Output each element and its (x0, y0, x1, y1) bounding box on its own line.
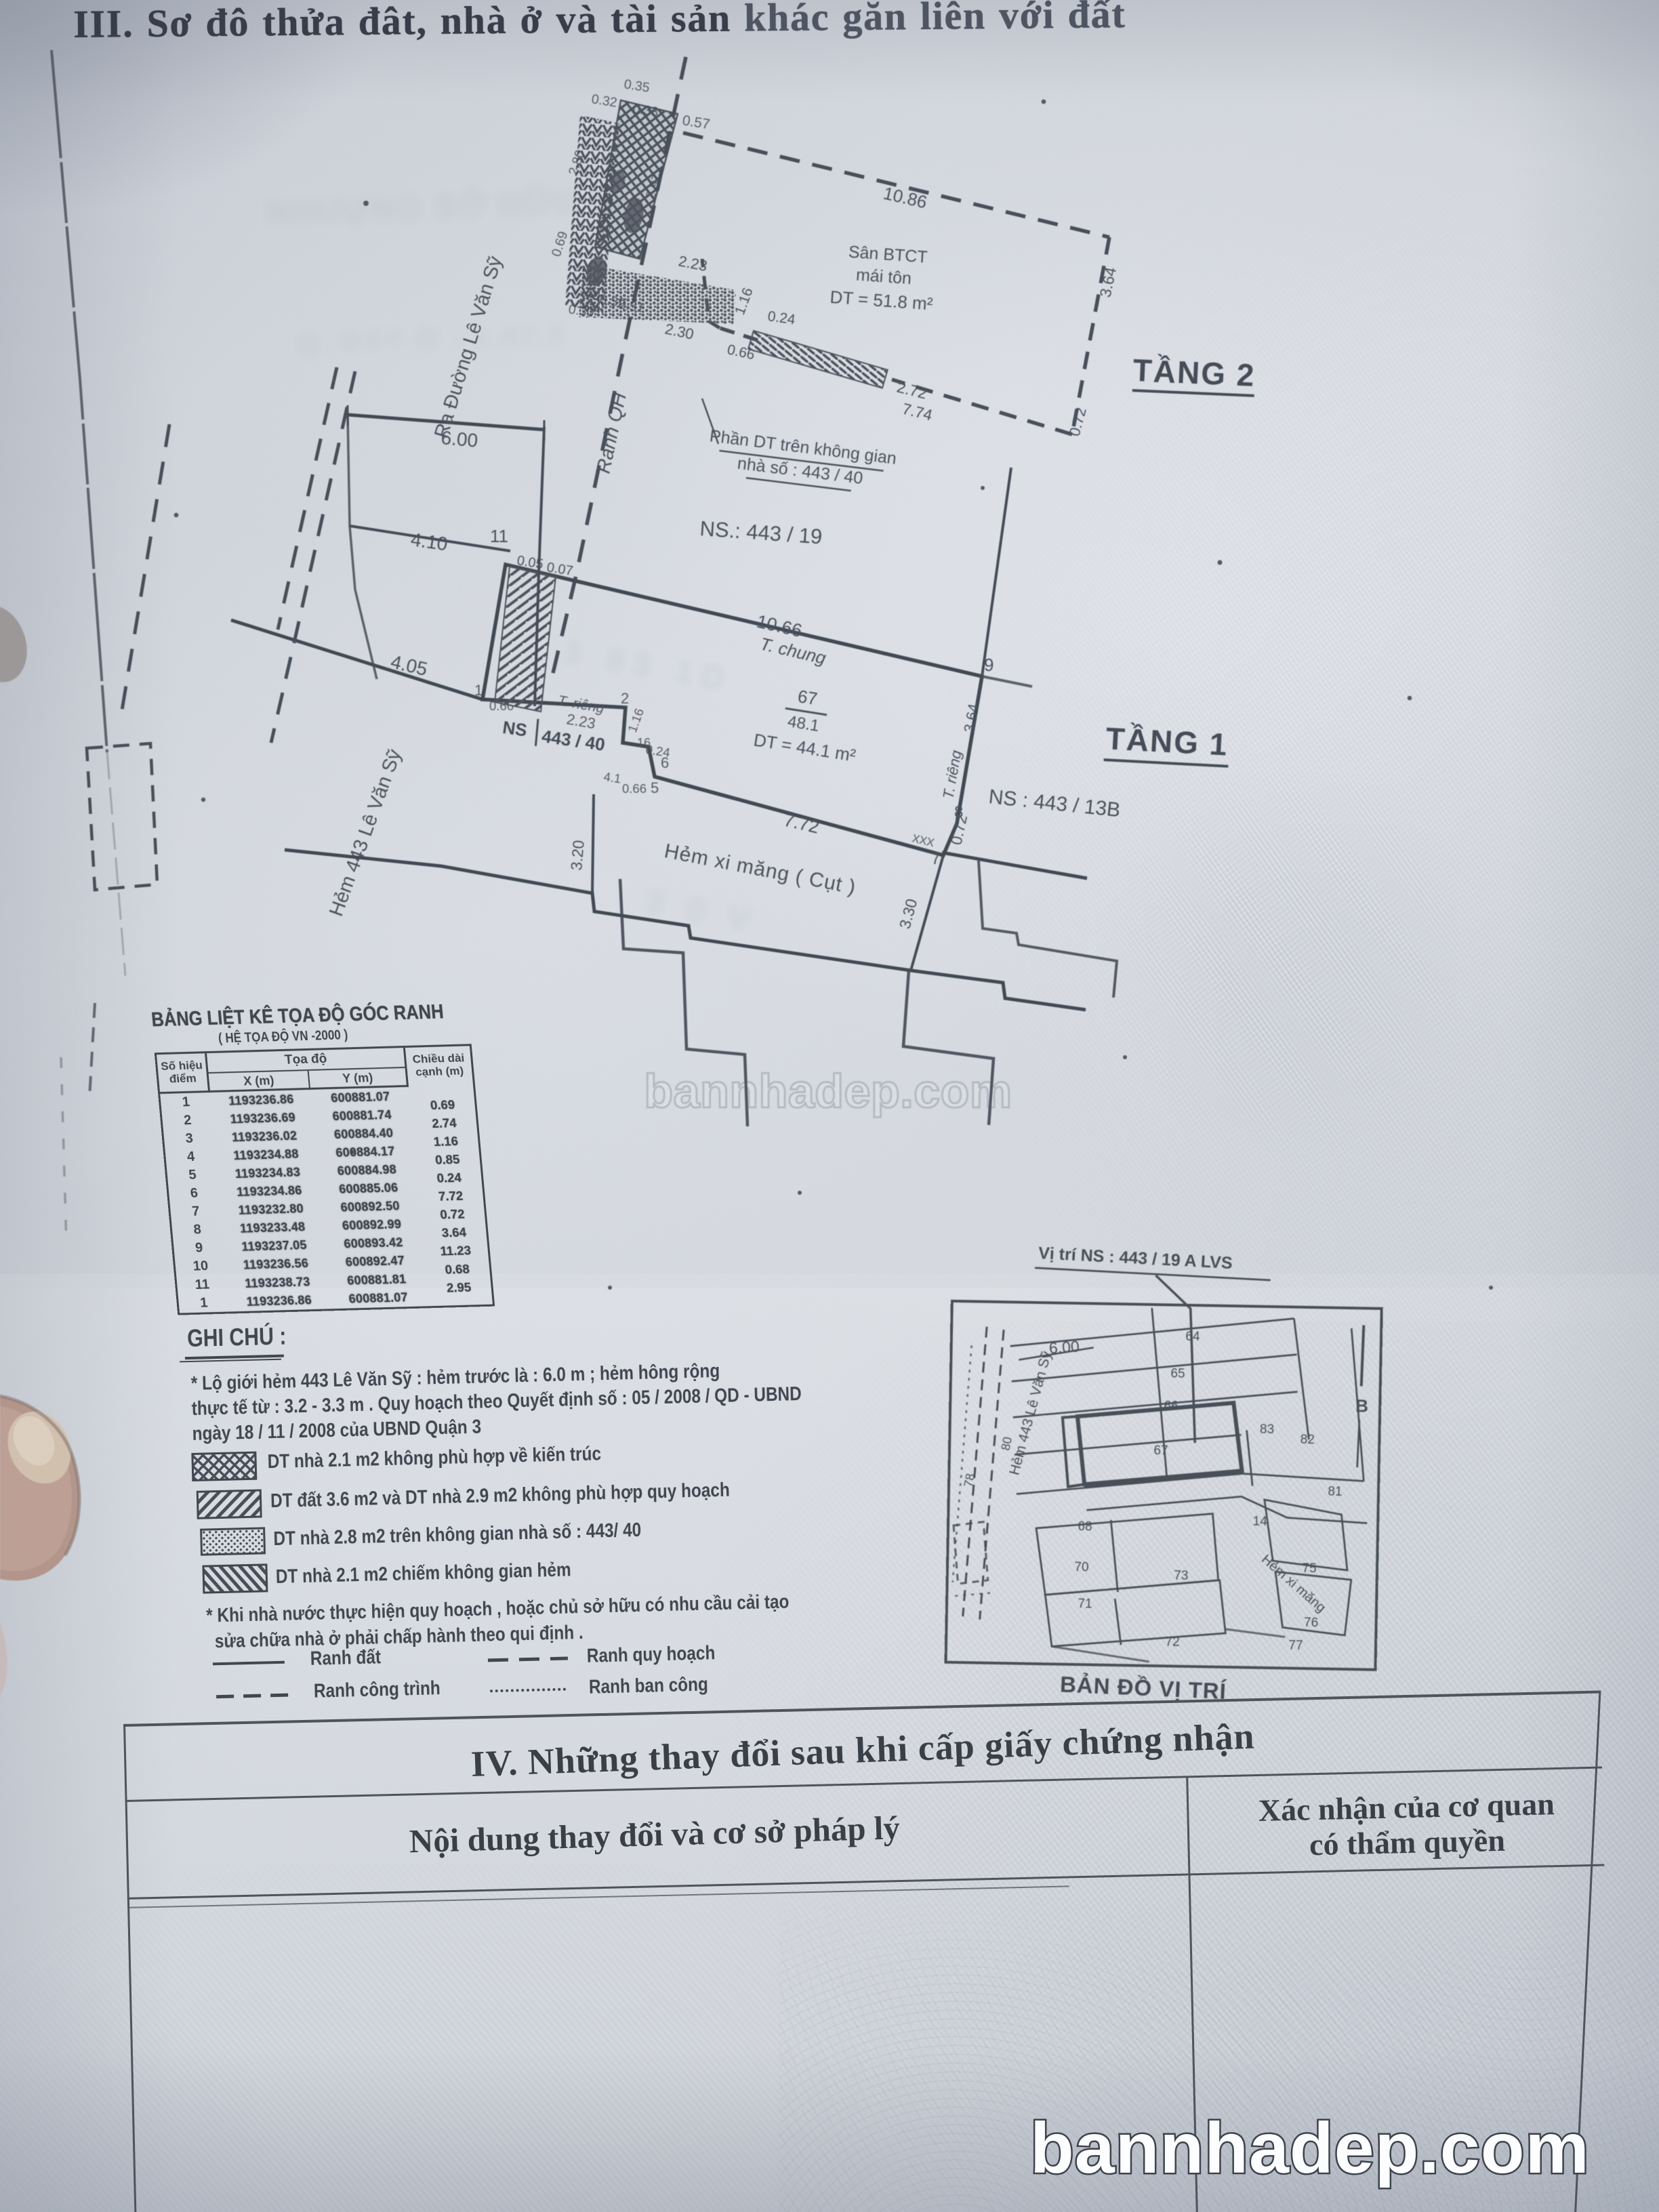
svg-text:bannhadep.com: bannhadep.com (1030, 2108, 1590, 2188)
